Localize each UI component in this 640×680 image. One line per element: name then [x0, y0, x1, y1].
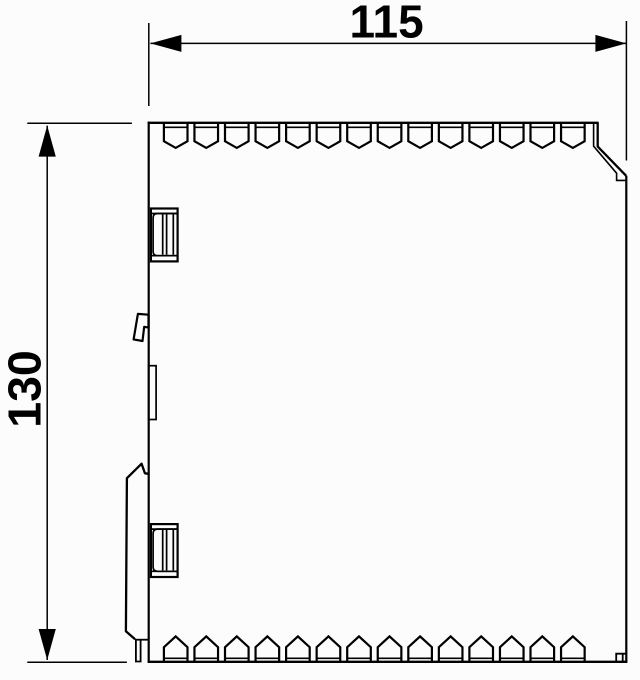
svg-text:115: 115 [349, 0, 423, 48]
svg-text:130: 130 [0, 350, 51, 428]
